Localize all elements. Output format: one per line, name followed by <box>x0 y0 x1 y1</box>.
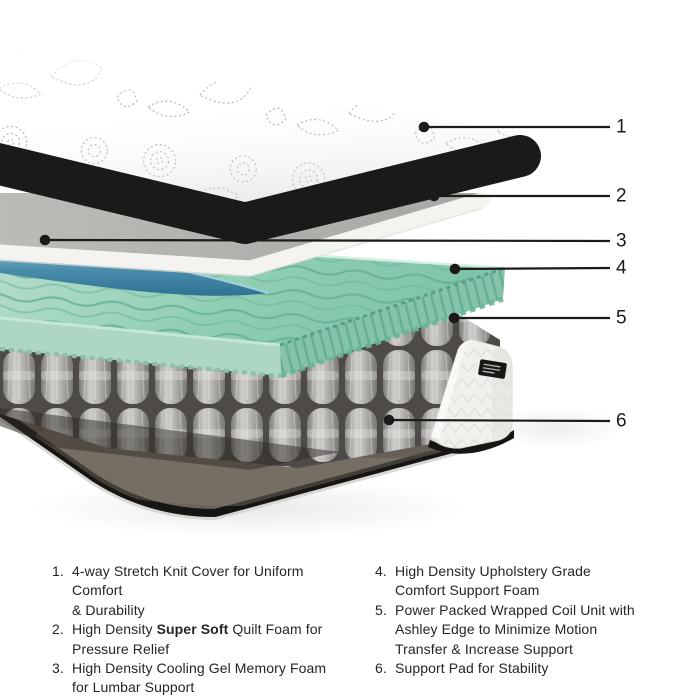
callout-line-6 <box>389 420 610 421</box>
legend-item-text: High Density Cooling Gel Memory Foamfor … <box>72 659 346 698</box>
callout-dot-4 <box>450 264 461 275</box>
legend-column-right: 4.High Density Upholstery GradeComfort S… <box>375 562 661 698</box>
legend-column-left: 1.4-way Stretch Knit Cover for Uniform C… <box>52 562 346 698</box>
callout-line-4 <box>455 268 610 269</box>
legend-item-text: Support Pad for Stability <box>395 659 661 678</box>
mattress-exploded-diagram: 123456 <box>0 0 700 545</box>
callout-dot-1 <box>419 122 430 133</box>
legend-item-text: High Density Super Soft Quilt Foam forPr… <box>72 620 346 659</box>
legend-item-text: High Density Upholstery GradeComfort Sup… <box>395 562 661 601</box>
callout-number-2: 2 <box>616 186 627 207</box>
legend-item: 2.High Density Super Soft Quilt Foam for… <box>52 620 346 659</box>
legend-item: 1.4-way Stretch Knit Cover for Uniform C… <box>52 562 346 620</box>
callout-dot-3 <box>40 235 51 246</box>
callout-line-3 <box>45 240 610 241</box>
legend: 1.4-way Stretch Knit Cover for Uniform C… <box>52 562 661 698</box>
legend-item-number: 4. <box>375 562 395 601</box>
legend-item-number: 5. <box>375 601 395 659</box>
legend-item: 3.High Density Cooling Gel Memory Foamfo… <box>52 659 346 698</box>
legend-item-text: Power Packed Wrapped Coil Unit withAshle… <box>395 601 661 659</box>
legend-item: 4.High Density Upholstery GradeComfort S… <box>375 562 661 601</box>
legend-item: 5.Power Packed Wrapped Coil Unit withAsh… <box>375 601 661 659</box>
callout-dot-6 <box>384 415 395 426</box>
callout-number-1: 1 <box>616 117 627 138</box>
legend-item: 6.Support Pad for Stability <box>375 659 661 678</box>
callout-dot-2 <box>429 191 440 202</box>
callout-number-6: 6 <box>616 411 627 432</box>
legend-item-number: 3. <box>52 659 72 698</box>
legend-item-number: 1. <box>52 562 72 620</box>
legend-item-text: 4-way Stretch Knit Cover for Uniform Com… <box>72 562 346 620</box>
callout-dot-5 <box>449 313 460 324</box>
legend-item-number: 6. <box>375 659 395 678</box>
callout-number-4: 4 <box>616 258 627 279</box>
mattress-layers-page: 123456 1.4-way Stretch Knit Cover for Un… <box>0 0 700 700</box>
legend-item-number: 2. <box>52 620 72 659</box>
callout-number-3: 3 <box>616 231 627 252</box>
callout-number-5: 5 <box>616 308 627 329</box>
